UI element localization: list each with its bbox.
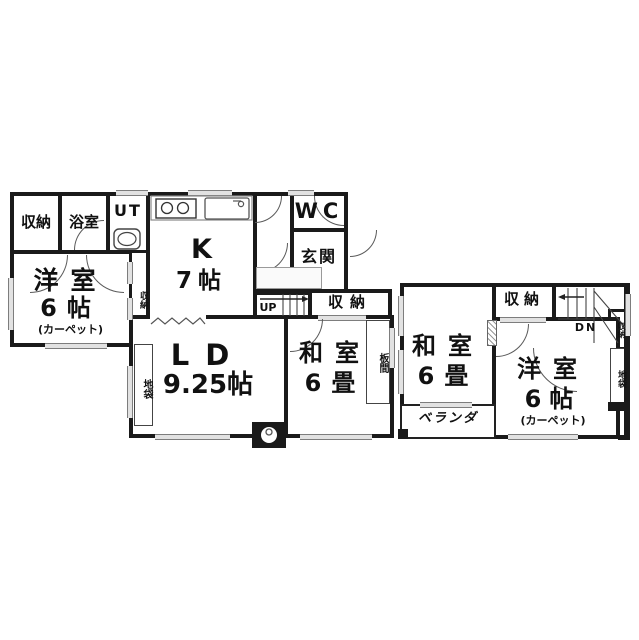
label-storage-stairs-1f: 収納 (310, 295, 390, 311)
label-western-1f: 洋室 (10, 268, 131, 294)
label-living-1f: LD (133, 340, 283, 370)
label-utility-1f: UT (106, 203, 150, 220)
label-storage-top-2f: 収納 (492, 292, 556, 308)
label-western-size-2f: 6帖 (494, 387, 612, 412)
label-veranda-2f: ベランダ (402, 412, 494, 426)
label-western-2f: 洋室 (494, 357, 612, 382)
window (389, 328, 395, 368)
entrance-step (256, 267, 322, 289)
label-storage-1f: 収納 (10, 215, 62, 231)
open-wall-zigzag (150, 311, 206, 321)
label-kitchen-1f: K (146, 236, 257, 264)
label-living-size-1f: 9.25帖 (133, 372, 283, 399)
window (288, 190, 314, 196)
veranda-post (398, 429, 408, 439)
washbasin-icon (113, 228, 141, 251)
window (45, 343, 107, 349)
kitchen-counter (150, 194, 255, 222)
label-entrance-1f: 玄関 (290, 249, 348, 266)
label-western-size-1f: 6帖 (10, 296, 131, 321)
wall-patch2-2f (618, 435, 626, 440)
label-western-note-1f: (カーペット) (10, 324, 131, 336)
label-closet-western-1f: 収納 (132, 280, 147, 320)
window (508, 434, 578, 440)
label-bathroom-1f: 浴室 (58, 215, 110, 231)
window (116, 190, 148, 196)
heater-unit-icon (252, 422, 286, 448)
label-up: UP (255, 302, 281, 314)
label-wood-floor-1f: 板間 (369, 338, 387, 388)
label-wc-1f: WC (290, 200, 348, 222)
label-storage-side-2f: 収納 (612, 314, 625, 346)
label-japanese-size-2f: 6畳 (402, 364, 494, 389)
label-dn: DN (566, 322, 606, 334)
sliding-door (420, 402, 472, 408)
door-arc-entrance (350, 230, 377, 257)
label-kitchen-size-1f: 7帖 (146, 269, 257, 293)
label-floor-cabinet-2f: 地袋 (611, 358, 625, 400)
label-western-note-2f: (カーペット) (494, 415, 612, 427)
label-japanese-2f: 和室 (402, 334, 494, 359)
sliding-door (500, 317, 546, 323)
sliding-door (318, 315, 366, 321)
window (155, 434, 230, 440)
window (300, 434, 372, 440)
window (398, 296, 404, 336)
label-floor-cabinet-1f: 地袋 (135, 366, 151, 412)
floor-plan: 収納 浴室 UT K 7帖 WC 玄関 洋室 6帖 (カーペット) 収納 UP … (0, 0, 639, 640)
